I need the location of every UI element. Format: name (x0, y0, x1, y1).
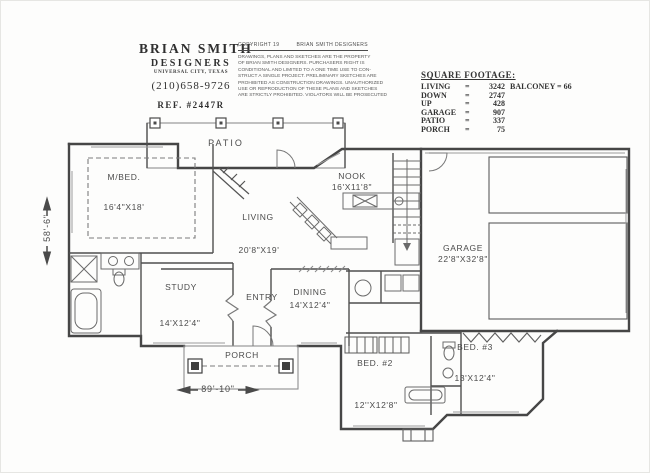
kitchen-fixtures (290, 193, 419, 265)
room-label-study: STUDY (153, 282, 209, 292)
dimension-arrows (44, 198, 259, 394)
room-dims-bed2: 12''X12'8" (341, 400, 411, 410)
room-dims-living: 20'8"X19' (217, 245, 301, 255)
bed3-bay-zigzag (463, 333, 541, 342)
room-label-dining: DINING (282, 287, 338, 297)
closet-hatching (345, 337, 409, 353)
fireplace (213, 167, 249, 199)
room-dims-study: 14'X12'4" (147, 318, 213, 328)
floor-plan-drawing (1, 1, 650, 473)
overall-height-dimension: 58'-6" (42, 198, 52, 258)
floor-plan-sheet: BRIAN SMITH DESIGNERS UNIVERSAL CITY, TE… (0, 0, 650, 473)
room-label-bed3: BED. #3 (444, 342, 506, 352)
bath-fixtures (71, 253, 455, 403)
room-label-nook: NOOK (323, 171, 381, 181)
room-dims-master-bedroom: 16'4"X18' (81, 202, 167, 212)
room-dims-dining: 14'X12'4" (277, 300, 343, 310)
room-dims-garage: 22'8"X32'8" (417, 254, 509, 264)
room-label-living: LIVING (223, 212, 293, 222)
room-label-garage: GARAGE (417, 243, 509, 253)
room-label-porch: PORCH (215, 350, 269, 360)
overall-width-dimension: 89'-10" (194, 384, 242, 394)
bottom-step-detail (403, 429, 433, 441)
room-label-bed2: BED. #2 (345, 358, 405, 368)
room-label-master-bedroom: M/BED. (89, 172, 159, 182)
room-label-patio: PATIO (191, 138, 261, 148)
room-dims-bed3: 13'X12'4" (442, 373, 508, 383)
room-dims-nook: 16'X11'8" (315, 182, 389, 192)
garage-bays (425, 153, 627, 319)
